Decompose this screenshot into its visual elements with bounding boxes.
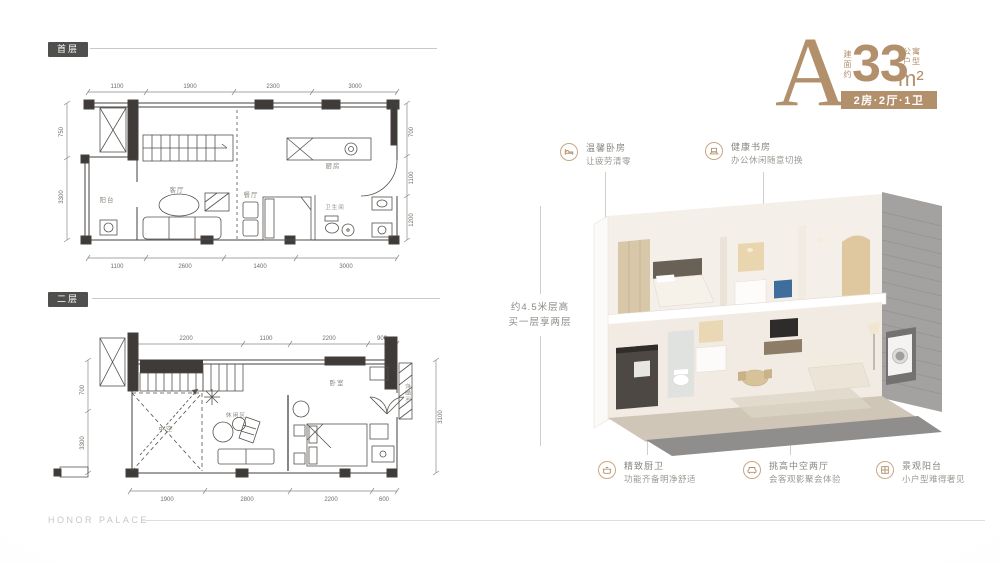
toilet <box>326 223 339 233</box>
svg-text:3100: 3100 <box>438 410 444 424</box>
stairs <box>140 373 203 391</box>
callout-balcony: 景观阳台 小户型难得奢见 <box>876 461 986 484</box>
floor1-walls <box>81 100 399 244</box>
footer-line <box>142 520 985 521</box>
height-note-line-bottom <box>540 336 541 446</box>
washer <box>100 220 117 235</box>
callout-title: 景观阳台 <box>902 461 965 471</box>
area-unit: m² <box>898 68 924 90</box>
svg-text:1900: 1900 <box>183 84 197 90</box>
svg-text:2800: 2800 <box>240 497 254 503</box>
balcony-icon <box>876 461 894 479</box>
floor1-room-labels: 阳台 客厅 餐厅 厨房 卫生间 <box>100 161 345 211</box>
svg-text:600: 600 <box>379 497 390 503</box>
unit-3d-render <box>550 180 950 470</box>
brochure-page: 首层 1100 1900 2300 3000 1100 2600 1400 <box>0 0 1000 564</box>
kitchen-icon <box>598 461 616 479</box>
floor1-badge: 首层 <box>48 42 88 57</box>
compass <box>204 389 220 405</box>
nightstand <box>294 453 305 464</box>
basin <box>372 223 392 237</box>
svg-text:750: 750 <box>59 126 65 137</box>
unit-type-letter: A <box>775 22 847 122</box>
svg-text:700: 700 <box>80 384 86 395</box>
floor1-badge-line <box>90 48 437 49</box>
svg-text:700: 700 <box>409 126 415 137</box>
svg-text:3000: 3000 <box>348 84 362 90</box>
height-note-line-top <box>540 206 541 294</box>
svg-text:厨房: 厨房 <box>326 161 341 170</box>
svg-text:1100: 1100 <box>111 84 125 90</box>
svg-text:卧室: 卧室 <box>330 378 345 387</box>
svg-text:1100: 1100 <box>260 336 274 342</box>
bed2 <box>307 424 367 466</box>
svg-text:卫生间: 卫生间 <box>325 203 345 211</box>
basin <box>372 197 392 210</box>
callout-kitchen-bath: 精致厨卫 功能齐备明净舒适 <box>598 461 718 484</box>
callout-sub: 办公休闲随意切换 <box>731 156 803 165</box>
svg-text:1400: 1400 <box>253 264 267 270</box>
svg-text:中空: 中空 <box>159 424 174 433</box>
layout-badge: 2房·2厅·1卫 <box>841 91 937 109</box>
svg-text:2600: 2600 <box>178 264 192 270</box>
brand-watermark: HONOR PALACE <box>48 515 149 525</box>
area-category-top: 公寓 <box>903 47 921 57</box>
callout-title: 健康书房 <box>731 142 803 152</box>
bedroom-chair <box>293 401 309 417</box>
callout-bedroom: 温馨卧房 让疲劳清零 <box>560 143 670 166</box>
callout-title: 挑高中空两厅 <box>769 461 841 471</box>
svg-text:1900: 1900 <box>160 497 174 503</box>
svg-text:2200: 2200 <box>179 336 193 342</box>
svg-text:1100: 1100 <box>409 171 415 185</box>
study-icon <box>705 142 723 160</box>
callout-living: 挑高中空两厅 会客观影聚会体验 <box>743 461 868 484</box>
svg-text:餐厅: 餐厅 <box>244 190 259 199</box>
living-table <box>159 194 199 216</box>
callout-sub: 功能齐备明净舒适 <box>624 475 696 484</box>
callout-sub: 会客观影聚会体验 <box>769 475 841 484</box>
svg-text:阳台: 阳台 <box>100 195 115 204</box>
desk <box>372 446 394 462</box>
floor2-room-labels: 中空 休闲区 卧室 衣帽间 <box>159 378 413 433</box>
svg-text:1100: 1100 <box>111 264 125 270</box>
dining-chair <box>243 220 258 236</box>
toilet-tank <box>325 216 338 221</box>
bed-icon <box>560 143 578 161</box>
svg-text:3300: 3300 <box>59 190 65 204</box>
svg-text:衣帽间: 衣帽间 <box>404 383 412 403</box>
bed <box>263 197 311 240</box>
svg-text:3000: 3000 <box>339 264 353 270</box>
callout-study: 健康书房 办公休闲随意切换 <box>705 142 825 165</box>
svg-text:2300: 2300 <box>266 84 280 90</box>
callout-sub: 小户型难得奢见 <box>902 475 965 484</box>
svg-text:客厅: 客厅 <box>170 185 185 194</box>
callout-sub: 让疲劳清零 <box>586 157 631 166</box>
stairs-upper <box>203 364 243 391</box>
svg-text:1200: 1200 <box>409 213 415 227</box>
svg-text:2200: 2200 <box>324 497 338 503</box>
entry-door-arc <box>361 160 397 196</box>
floor2-walls <box>54 333 397 477</box>
leisure-table <box>213 422 233 442</box>
sofa-icon <box>743 461 761 479</box>
area-category: 公寓 户型 <box>903 47 921 67</box>
shower-drain <box>342 224 354 236</box>
floor1-fixtures <box>100 108 397 240</box>
callout-title: 精致厨卫 <box>624 461 696 471</box>
svg-text:2200: 2200 <box>322 336 336 342</box>
svg-text:休闲区: 休闲区 <box>226 411 246 419</box>
callout-title: 温馨卧房 <box>586 143 631 153</box>
nightstand <box>294 425 305 436</box>
render-washing-machine <box>886 327 916 385</box>
svg-text:3300: 3300 <box>80 436 86 450</box>
floor1-plan: 1100 1900 2300 3000 1100 2600 1400 3000 … <box>55 62 465 277</box>
cabinet <box>370 424 388 439</box>
floor2-plan: 2200 1100 2200 900 1900 2800 2200 600 31… <box>40 285 470 510</box>
dining-chair <box>243 202 258 218</box>
